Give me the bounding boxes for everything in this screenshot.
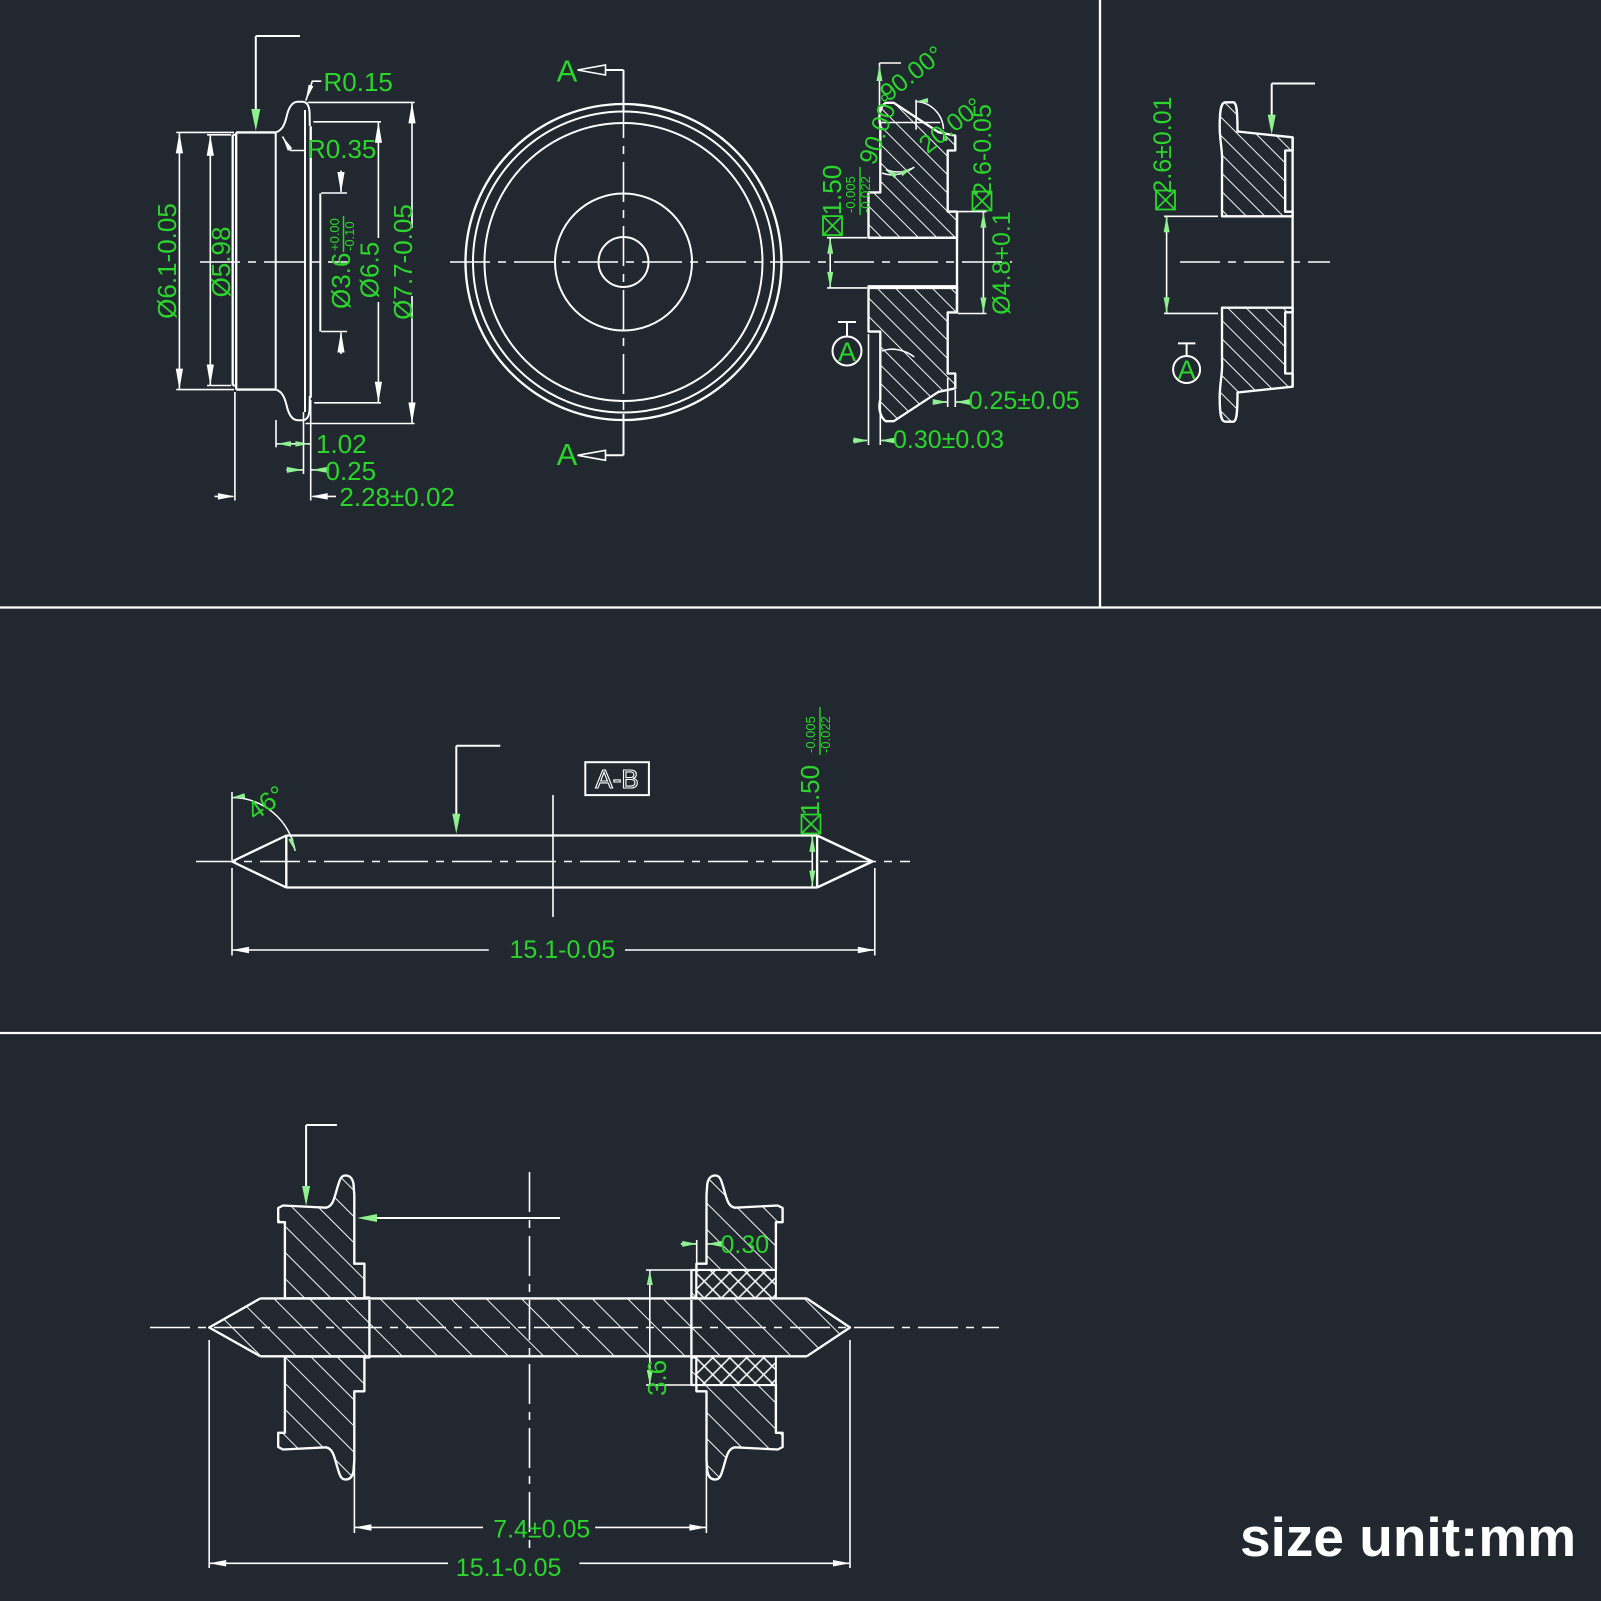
svg-text:R0.15: R0.15 [324, 67, 393, 97]
svg-text:15.1-0.05: 15.1-0.05 [456, 1554, 562, 1582]
svg-text:1.50: 1.50 [795, 765, 825, 816]
svg-text:Ø4.8+0.1: Ø4.8+0.1 [988, 211, 1016, 315]
svg-text:15.1-0.05: 15.1-0.05 [510, 936, 616, 964]
svg-text:-0.005: -0.005 [843, 176, 858, 213]
svg-text:2.6±0.01: 2.6±0.01 [1149, 96, 1177, 193]
svg-text:0.30±0.03: 0.30±0.03 [893, 426, 1004, 454]
svg-text:A-B: A-B [595, 764, 638, 794]
svg-text:A: A [1178, 355, 1196, 385]
svg-text:Ø6.5: Ø6.5 [354, 242, 384, 298]
svg-text:3.6: 3.6 [642, 1360, 672, 1396]
svg-text:Ø5.98: Ø5.98 [206, 227, 236, 298]
svg-text:+0.00: +0.00 [327, 218, 342, 251]
svg-text:R0.35: R0.35 [307, 134, 376, 164]
svg-text:1.02: 1.02 [316, 429, 367, 459]
svg-text:7.4±0.05: 7.4±0.05 [493, 1515, 590, 1543]
svg-text:2.28±0.02: 2.28±0.02 [339, 482, 454, 512]
svg-text:-0.005: -0.005 [803, 716, 818, 753]
svg-text:A: A [557, 437, 578, 472]
svg-text:0.25±0.05: 0.25±0.05 [969, 387, 1080, 415]
svg-text:size unit:mm: size unit:mm [1240, 1506, 1576, 1568]
svg-text:Ø7.7-0.05: Ø7.7-0.05 [388, 204, 418, 320]
svg-text:Ø3.6: Ø3.6 [326, 253, 356, 309]
svg-text:A: A [557, 54, 578, 89]
svg-text:Ø6.1-0.05: Ø6.1-0.05 [152, 203, 182, 319]
svg-text:0.30: 0.30 [721, 1231, 770, 1259]
svg-text:2.6-0.05: 2.6-0.05 [969, 104, 997, 196]
svg-text:A: A [838, 337, 856, 367]
